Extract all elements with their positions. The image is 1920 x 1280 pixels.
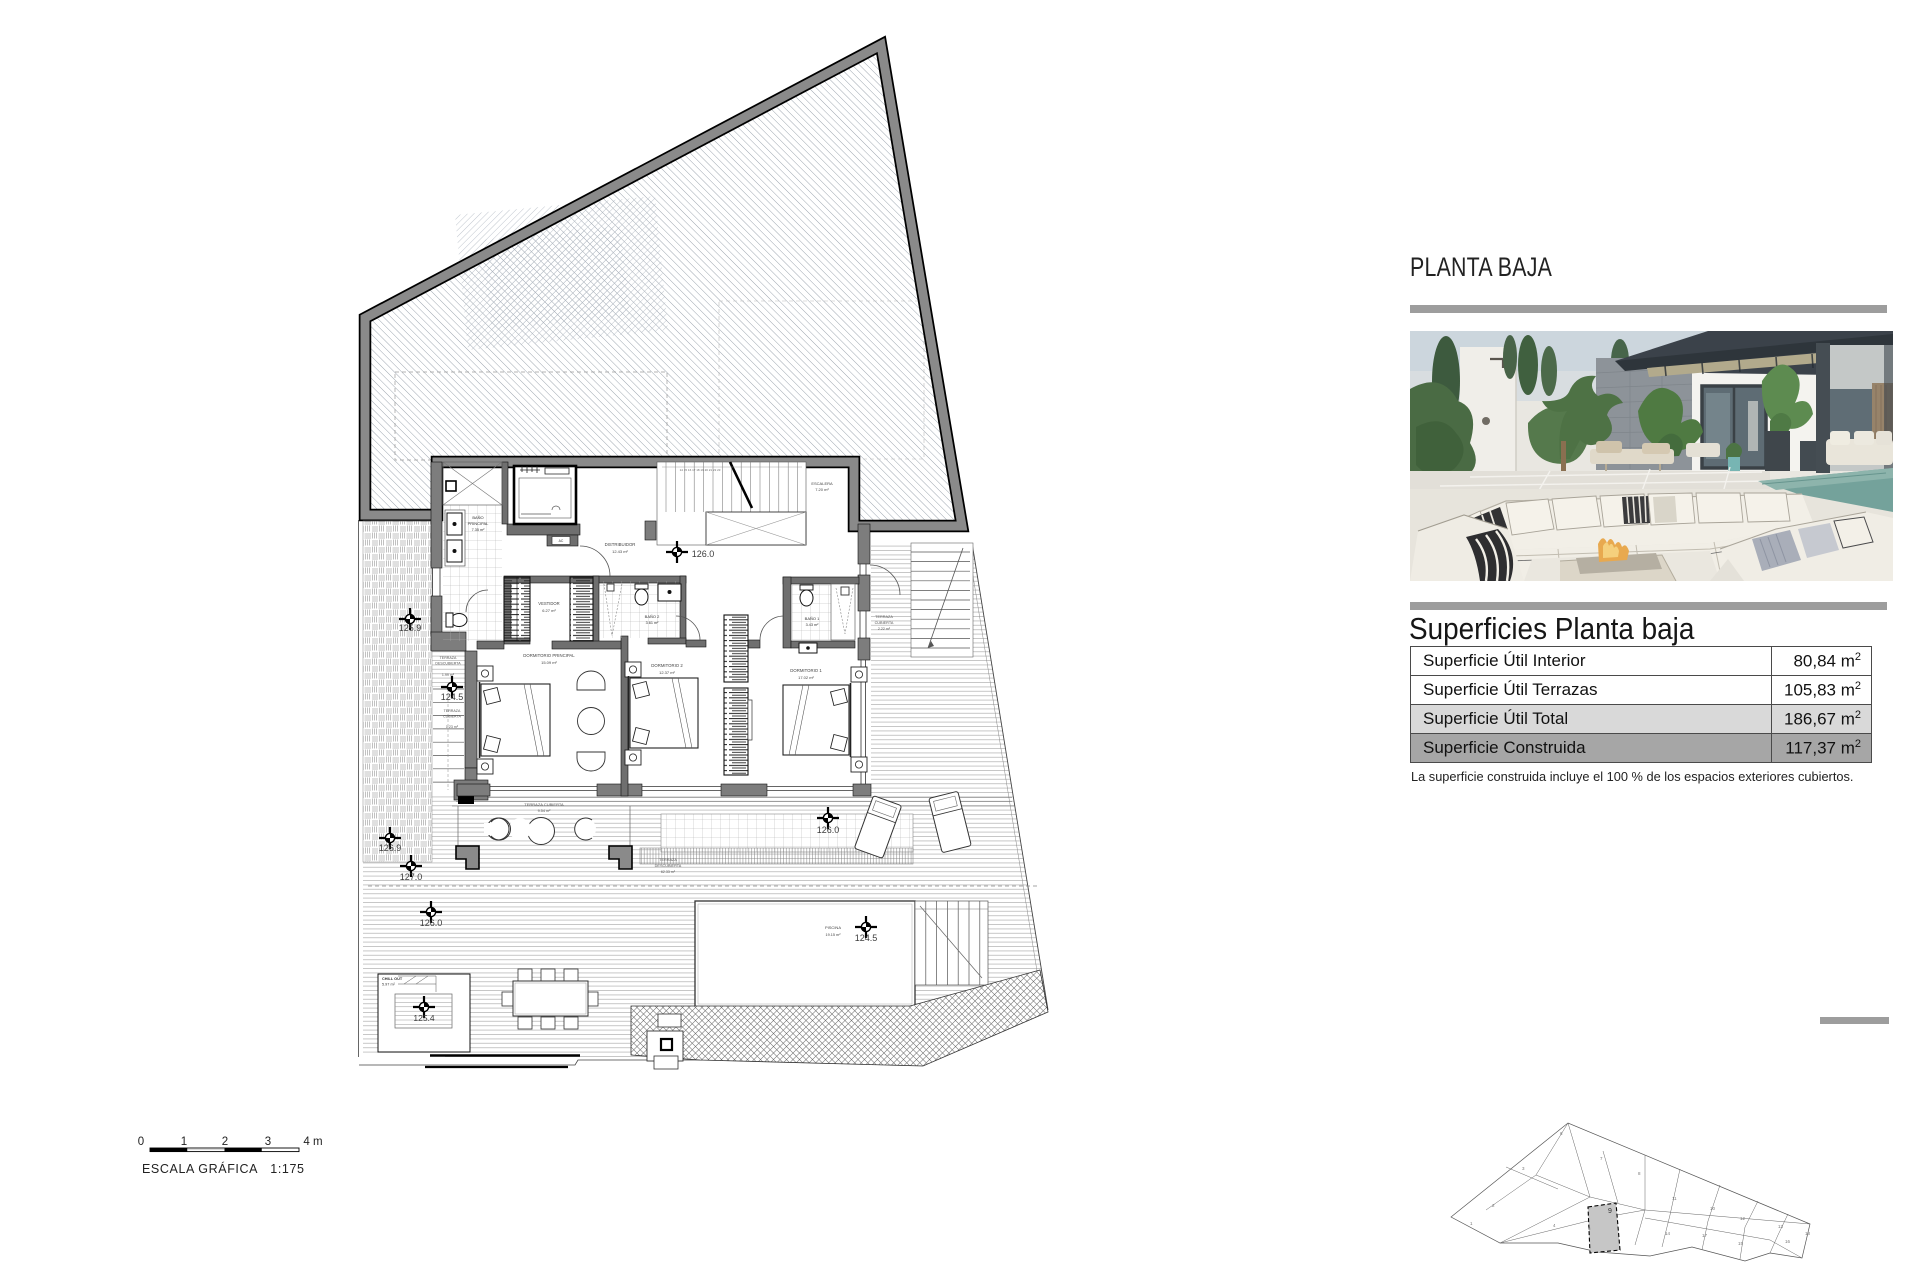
svg-text:7: 7	[1600, 1156, 1603, 1161]
svg-text:12: 12	[1740, 1216, 1746, 1221]
svg-text:14: 14	[1665, 1231, 1671, 1236]
svg-text:CUBIERTA: CUBIERTA	[875, 621, 894, 625]
svg-text:9: 9	[1608, 1208, 1612, 1215]
svg-text:1: 1	[181, 1136, 187, 1148]
svg-text:12.37 m²: 12.37 m²	[659, 670, 675, 675]
svg-text:BAÑO 2: BAÑO 2	[645, 614, 660, 619]
svg-text:17.02 m²: 17.02 m²	[798, 675, 814, 680]
svg-text:125.9: 125.9	[399, 623, 422, 633]
svg-text:3: 3	[1522, 1166, 1525, 1171]
svg-text:TERRAZA CUBIERTA: TERRAZA CUBIERTA	[524, 802, 564, 807]
svg-text:126.0: 126.0	[420, 918, 443, 928]
svg-text:18: 18	[1805, 1231, 1811, 1236]
svg-text:19.15 m²: 19.15 m²	[826, 933, 842, 937]
svg-text:2.22 m²: 2.22 m²	[878, 627, 891, 631]
svg-text:16: 16	[1785, 1239, 1791, 1244]
svg-text:13: 13	[1778, 1224, 1784, 1229]
svg-text:126.9: 126.9	[379, 843, 402, 853]
svg-text:1.23 m²: 1.23 m²	[446, 725, 459, 729]
svg-text:DORMITORIO PRINCIPAL: DORMITORIO PRINCIPAL	[523, 653, 575, 658]
svg-text:15.09 m²: 15.09 m²	[541, 660, 557, 665]
svg-text:CUBIERTA: CUBIERTA	[443, 715, 461, 719]
svg-text:DESCUBIERTA: DESCUBIERTA	[655, 864, 682, 868]
svg-text:DESCUBIERTA: DESCUBIERTA	[435, 662, 461, 666]
svg-text:126.0: 126.0	[692, 549, 715, 559]
svg-text:ESCALA GRÁFICA 1:175: ESCALA GRÁFICA 1:175	[142, 1161, 305, 1176]
svg-text:TERRAZA: TERRAZA	[659, 858, 677, 862]
svg-text:ESCALERA: ESCALERA	[811, 481, 833, 486]
svg-text:PRINCIPAL: PRINCIPAL	[468, 521, 490, 526]
svg-text:12.43 m²: 12.43 m²	[612, 549, 628, 554]
svg-text:14 15 16 17 18 19 20 21: 14 15 16 17 18 19 20 21 22 23	[680, 468, 721, 472]
svg-text:7.35 m²: 7.35 m²	[472, 528, 486, 532]
svg-text:4: 4	[1553, 1223, 1556, 1228]
svg-text:11: 11	[1672, 1196, 1677, 1201]
svg-text:6.27 m²: 6.27 m²	[542, 608, 556, 613]
svg-text:127.0: 127.0	[400, 872, 423, 882]
svg-text:3: 3	[265, 1136, 271, 1148]
svg-text:DORMITORIO 1: DORMITORIO 1	[790, 668, 822, 673]
svg-text:CHILL OUT: CHILL OUT	[382, 977, 403, 981]
svg-text:15: 15	[1738, 1241, 1744, 1246]
svg-text:PISCINA: PISCINA	[825, 925, 841, 930]
svg-text:VESTIDOR: VESTIDOR	[538, 601, 559, 606]
svg-text:DORMITORIO 2: DORMITORIO 2	[651, 663, 683, 668]
svg-text:3.43 m²: 3.43 m²	[806, 623, 820, 627]
svg-text:1: 1	[1470, 1221, 1473, 1226]
svg-text:9.54 m²: 9.54 m²	[538, 809, 552, 813]
svg-text:TERRAZA: TERRAZA	[440, 656, 457, 660]
svg-text:BAÑO 1: BAÑO 1	[805, 616, 820, 621]
svg-text:124.5: 124.5	[441, 692, 464, 702]
svg-text:5.97 m²: 5.97 m²	[382, 983, 396, 987]
svg-text:8: 8	[1638, 1171, 1641, 1176]
svg-text:17: 17	[1702, 1233, 1708, 1238]
svg-text:125.4: 125.4	[413, 1013, 435, 1023]
svg-text:10: 10	[1710, 1206, 1716, 1211]
svg-text:62.33 m²: 62.33 m²	[661, 870, 676, 874]
svg-text:2: 2	[222, 1136, 228, 1148]
svg-text:BAÑO: BAÑO	[472, 515, 483, 520]
svg-text:TERRAZA: TERRAZA	[444, 709, 461, 713]
svg-text:124.5: 124.5	[855, 933, 878, 943]
svg-text:DISTRIBUIDOR: DISTRIBUIDOR	[605, 542, 636, 547]
svg-text:3.61 m²: 3.61 m²	[646, 621, 660, 625]
svg-text:TERRAZA: TERRAZA	[875, 615, 893, 619]
svg-text:126.0: 126.0	[817, 825, 840, 835]
svg-text:0: 0	[138, 1136, 144, 1148]
svg-text:7.20 m²: 7.20 m²	[815, 487, 829, 492]
svg-text:AC: AC	[559, 539, 564, 543]
svg-text:4 m: 4 m	[303, 1136, 322, 1148]
